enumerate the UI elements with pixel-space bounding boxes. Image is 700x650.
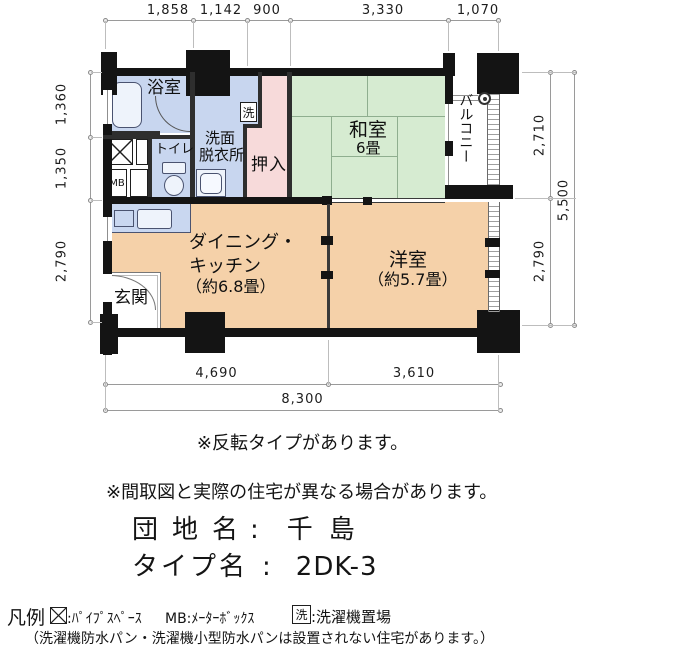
sliding-door-line: [330, 198, 445, 199]
window-tatami-east-1: [445, 104, 453, 141]
estate-name-label: 団地名: [132, 515, 252, 545]
tatami-line: [331, 117, 332, 199]
dim-right-total: 5,500: [557, 179, 572, 221]
laundry-mark-box: 洗: [240, 102, 257, 122]
legend-note: （洗濯機防水パン・洗濯機小型防水パンは設置されない住宅があります。）: [25, 628, 494, 648]
wall-toilet-left: [148, 137, 152, 198]
dim-line-bottom-outer: [105, 410, 500, 411]
wall-balcony-bottom: [445, 185, 513, 199]
pillar-bottom-right: [477, 310, 520, 353]
x-cross-icon: [51, 608, 66, 623]
dim-top-2: 900: [237, 3, 297, 18]
legend-meter-box-text: MB:ﾒｰﾀｰﾎﾞｯｸｽ: [165, 608, 254, 628]
dim-line-top: [105, 20, 498, 21]
dk-label-line2: キッチン: [189, 257, 261, 277]
legend-laundry-text: :洗濯機置場: [311, 606, 391, 627]
dim-extension: [91, 137, 102, 138]
divider-door-block: [321, 236, 333, 245]
laundry-pan-inner: [200, 173, 222, 194]
dim-extension: [247, 21, 248, 66]
dim-line-left: [90, 72, 91, 322]
floorplan-document: 洗 MB: [0, 0, 700, 650]
washroom-label-line1: 洗面: [205, 130, 235, 147]
tatami-line: [367, 72, 368, 117]
wall-closet-left-upper: [258, 72, 262, 128]
type-name-colon: :: [262, 552, 271, 582]
dk-label-line1: ダイニング・: [189, 233, 297, 253]
window-western-east: [488, 202, 500, 312]
tatami-room-label: 和室: [349, 120, 387, 141]
sliding-door-stop: [363, 197, 372, 205]
toilet-label: トイレ: [155, 143, 194, 157]
wall-bottom: [103, 328, 495, 337]
wall-top: [103, 68, 455, 76]
pillar-bottom-middle: [185, 312, 225, 353]
entrance-door-gap: [103, 274, 112, 302]
dim-extension: [91, 72, 102, 73]
pillar-balcony-top: [477, 53, 519, 94]
estate-name-colon: :: [250, 515, 259, 545]
washroom-label-line2: 脱衣所: [199, 147, 244, 164]
dim-bottom-0: 4,690: [105, 366, 328, 381]
kitchen-sink: [137, 209, 172, 229]
dim-left-2: 2,790: [55, 240, 70, 282]
window-tatami-east-1-frame: [448, 104, 449, 141]
balcony-label: バルコニー: [457, 93, 472, 183]
window-tatami-east-2: [445, 156, 453, 185]
laundry-mark-label: 洗: [242, 104, 254, 121]
wall-tatami-east-middle: [445, 141, 453, 156]
western-room-label: 洋室: [389, 250, 427, 271]
estate-name-value: 千島: [287, 515, 371, 545]
tatami-room-size: 6畳: [356, 140, 381, 157]
utility-box: [136, 139, 148, 165]
legend-pipe-space-symbol: [50, 607, 67, 624]
kitchen-stove: [114, 210, 134, 227]
type-name-row: タイプ名:2DK-3: [132, 546, 378, 583]
dk-size-label: （約6.8畳）: [186, 278, 275, 296]
balcony-circle-symbol: [478, 92, 491, 105]
dim-extension: [448, 21, 449, 51]
dim-left-0: 1,360: [55, 83, 70, 125]
dim-top-4: 1,070: [448, 3, 508, 18]
balcony-railing: [487, 94, 500, 185]
closet-label: 押入: [251, 156, 287, 175]
type-name-label: タイプ名: [132, 552, 248, 582]
room-closet-upper: [258, 72, 288, 130]
dim-extension: [522, 72, 576, 73]
dim-extension: [193, 21, 194, 48]
window-western-east-block: [485, 238, 500, 247]
wall-bath-right: [190, 72, 195, 135]
wall-middle-horizontal: [112, 197, 330, 204]
window-bath-west-frame: [107, 90, 108, 124]
note-difference: ※間取図と実際の住宅が異なる場合があります。: [106, 478, 497, 504]
dim-top-3: 3,330: [353, 3, 413, 18]
legend-title: 凡例: [7, 603, 45, 630]
dim-extension: [290, 21, 291, 66]
sliding-door-line: [330, 202, 445, 203]
dim-bottom-1: 3,610: [328, 366, 500, 381]
divider-door-block: [321, 271, 333, 279]
utility-box: [130, 169, 148, 197]
toilet-bowl: [164, 175, 184, 196]
dim-extension: [522, 325, 576, 326]
dim-top-0: 1,858: [138, 3, 198, 18]
dim-line-bottom-inner: [105, 384, 500, 385]
dim-right-1: 2,790: [533, 240, 548, 282]
legend-laundry-symbol-label: 洗: [295, 606, 307, 623]
wall-tatami-east-upper: [445, 66, 453, 104]
toilet-tank: [162, 162, 186, 174]
estate-name-row: 団地名:千島: [132, 509, 371, 546]
wall-closet-right: [287, 72, 292, 198]
type-name-value: 2DK-3: [296, 552, 378, 582]
dim-right-0: 2,710: [533, 114, 548, 156]
tatami-line: [290, 116, 447, 117]
dim-extension: [105, 21, 106, 49]
legend-pipe-space-text: :ﾊﾟｲﾌﾟｽﾍﾟｰｽ: [67, 608, 142, 628]
window-tatami-east-2-frame: [448, 156, 449, 185]
entrance-label: 玄関: [114, 289, 148, 308]
dim-extension: [498, 21, 499, 51]
western-room-size: （約5.7畳）: [368, 271, 457, 289]
legend-laundry-symbol: 洗: [292, 605, 311, 624]
dim-extension: [91, 200, 102, 201]
note-flip-type: ※反転タイプがあります。: [105, 429, 500, 455]
window-dk-west-frame: [107, 217, 108, 241]
tatami-line: [397, 117, 398, 199]
pillar-bottom-left: [100, 314, 118, 354]
bath-label: 浴室: [147, 79, 181, 98]
dim-extension: [91, 322, 102, 323]
dim-left-1: 1,350: [55, 147, 70, 189]
wall-dk-western-divider: [327, 204, 330, 328]
dim-bottom-total: 8,300: [105, 392, 500, 407]
window-western-east-block: [485, 270, 500, 278]
